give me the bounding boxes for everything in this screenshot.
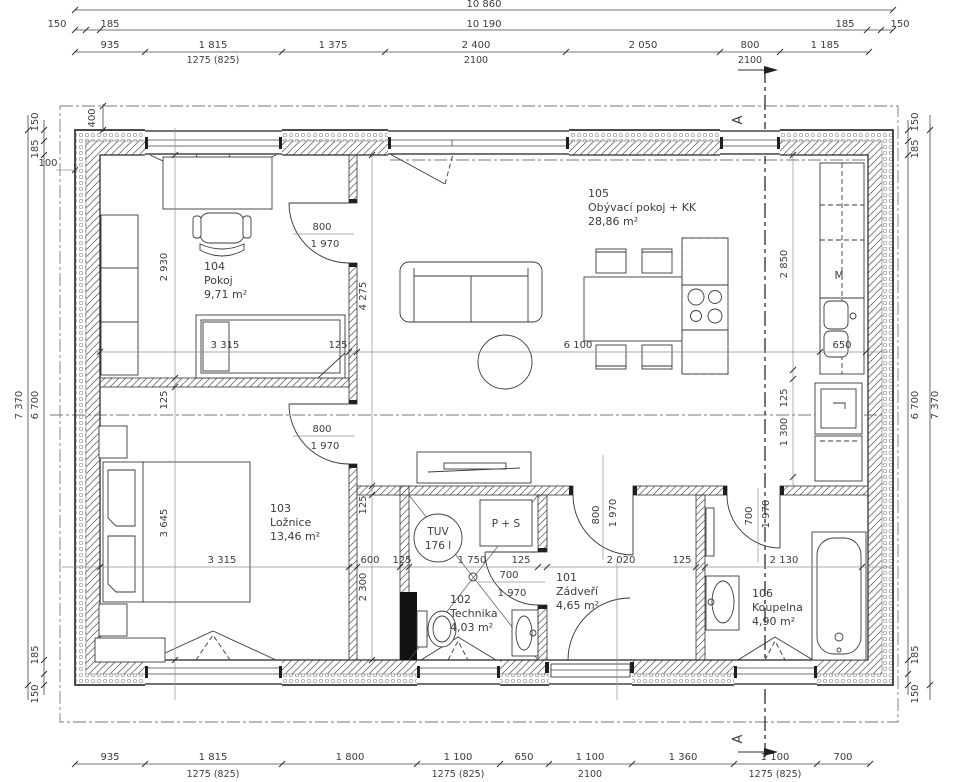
wardrobe-104 [101,215,138,375]
dim-label: 125 [779,388,790,407]
kitchen [682,163,864,481]
dim-label: 700 [744,506,755,525]
dim-label: 400 [87,108,98,127]
dim-label: 1 970 [761,500,772,529]
dim-label: 1 100 [444,752,473,763]
dim-label: 125 [511,555,530,566]
washbasin-koupelna [706,576,739,630]
room-area: 28,86 m² [588,215,638,228]
dim-label: 1 100 [761,752,790,763]
loznice-furniture [95,426,250,662]
kitchen-tall-cabinets [815,383,862,481]
window-kitchen [720,129,780,156]
dim-label: 935 [100,752,119,763]
bathtub [812,532,866,660]
dim-label: 6 700 [30,391,41,420]
dim-label: 1 970 [498,588,527,599]
dim-label: 2 300 [358,573,369,602]
washbasin-technika [512,610,538,656]
dim-label: 1 360 [669,752,698,763]
dim-label: 1275 (825) [187,55,240,66]
dim-label: 7 370 [930,391,941,420]
room-name: Ložnice [270,516,312,529]
dim-label: 125 [672,555,691,566]
room-number: 103 [270,502,291,515]
dim-label: 150 [890,19,909,30]
dim-label: 150 [30,112,41,131]
room-label-101: 101 Zádveří 4,65 m² [556,571,599,612]
tv-bench [417,452,531,483]
dim-label: 1 800 [336,752,365,763]
door-room104 [289,203,349,263]
furniture [95,157,866,662]
section-arrow-top-icon [764,66,778,74]
desk-chair [193,213,251,256]
room-label-106: 106 Koupelna 4,90 m² [752,587,803,628]
dim-label: 2 930 [159,253,170,282]
desk [163,157,272,209]
dim-label: 1 970 [311,239,340,250]
dim-label: 150 [910,112,921,131]
floor-plan-svg: A A [0,0,954,782]
dim-label: 700 [833,752,852,763]
koupelna-fixtures [706,508,866,660]
room-area: 4,65 m² [556,599,599,612]
dim-label: 2100 [738,55,762,66]
room-name: Koupelna [752,601,803,614]
window-living [388,129,569,184]
room-number: 104 [204,260,225,273]
dim-label: 3 315 [208,555,237,566]
dim-label: 1 300 [779,418,790,447]
dim-label: 800 [312,222,331,233]
dim-label: 2 130 [770,555,799,566]
dim-label: 2100 [578,769,602,780]
water-heater-label: TUV [426,526,449,538]
coffee-table [478,335,532,389]
dim-label: 1 970 [311,441,340,452]
dim-label: 125 [328,340,347,351]
room-label-103: 103 Ložnice 13,46 m² [270,502,320,543]
living-furniture [400,249,688,483]
dim-label: 1275 (825) [432,769,485,780]
sink-bowl [824,301,848,329]
section-label-bottom: A [731,734,746,743]
installation-wall [400,592,417,660]
room-area: 9,71 m² [204,288,247,301]
room-area: 4,03 m² [450,621,493,634]
dim-label: 3 645 [159,509,170,538]
section-line-a: A A [731,66,778,757]
dim-label: 185 [30,645,41,664]
room-number: 106 [752,587,773,600]
room-name: Obývací pokoj + KK [588,201,697,214]
dim-label: 125 [392,555,411,566]
room-number: 101 [556,571,577,584]
window-loznice [145,631,282,686]
dim-label: 185 [100,19,119,30]
dim-label: 2100 [464,55,488,66]
dim-label: 1275 (825) [749,769,802,780]
dim-label: 6 700 [910,391,921,420]
dim-label: 2 050 [629,40,658,51]
dim-label: 150 [47,19,66,30]
dim-label: 650 [832,340,851,351]
dim-label: 3 315 [211,340,240,351]
bed-double [103,462,250,602]
dim-label: 150 [910,684,921,703]
dim-label: 800 [591,505,602,524]
nightstand [99,604,127,636]
floor-plan-canvas: A A [0,0,954,782]
dim-label: 650 [514,752,533,763]
room-name: Zádveří [556,585,599,598]
dim-label: 185 [30,139,41,158]
room-area: 13,46 m² [270,530,320,543]
radiator [706,508,714,556]
dim-label: 4 275 [358,282,369,311]
dresser [95,638,165,662]
dim-label: 2 020 [607,555,636,566]
room-label-104: 104 Pokoj 9,71 m² [204,260,247,301]
dim-overall-width: 10 860 [467,0,502,10]
dim-label: 125 [358,495,369,514]
dim-label: 800 [312,424,331,435]
water-heater-volume: 176 l [425,540,451,552]
dim-label: 6 100 [564,340,593,351]
water-heater [414,514,462,562]
kitchen-island [682,238,728,374]
dim-label: 150 [30,684,41,703]
window-technika [417,637,500,686]
room-name: Technika [449,607,498,620]
dim-label: 700 [499,570,518,581]
dim-label: 7 370 [14,391,25,420]
dim-label: 1 815 [199,40,228,51]
dim-label: 1 100 [576,752,605,763]
dim-label: 2 850 [779,250,790,279]
room-area: 4,90 m² [752,615,795,628]
room-number: 102 [450,593,471,606]
section-label-top: A [731,115,746,124]
nightstand [99,426,127,458]
dim-label: 1275 (825) [187,769,240,780]
room-name: Pokoj [204,274,233,287]
dining-table [584,277,688,341]
dim-label: 2 400 [462,40,491,51]
dim-label: 1 970 [608,499,619,528]
window-koupelna [734,637,817,686]
dim-label: 600 [360,555,379,566]
dim-label: 100 [38,158,57,169]
dim-label: 1 375 [319,40,348,51]
room-number: 105 [588,187,609,200]
dim-label: 125 [159,390,170,409]
dim-label: 185 [835,19,854,30]
dim-label: 185 [910,645,921,664]
sofa [400,262,542,322]
dim-label: 1 815 [199,752,228,763]
dim-label: 10 190 [467,19,502,30]
dim-label: 1 750 [458,555,487,566]
dining-set [584,249,688,369]
room-label-105: 105 Obývací pokoj + KK 28,86 m² [588,187,697,228]
dim-label: 935 [100,40,119,51]
dim-label: 800 [740,40,759,51]
washer-dryer-label: P + S [492,518,521,530]
appliance-m-label: M [834,270,843,282]
dim-label: 1 185 [811,40,840,51]
dim-label: 185 [910,139,921,158]
